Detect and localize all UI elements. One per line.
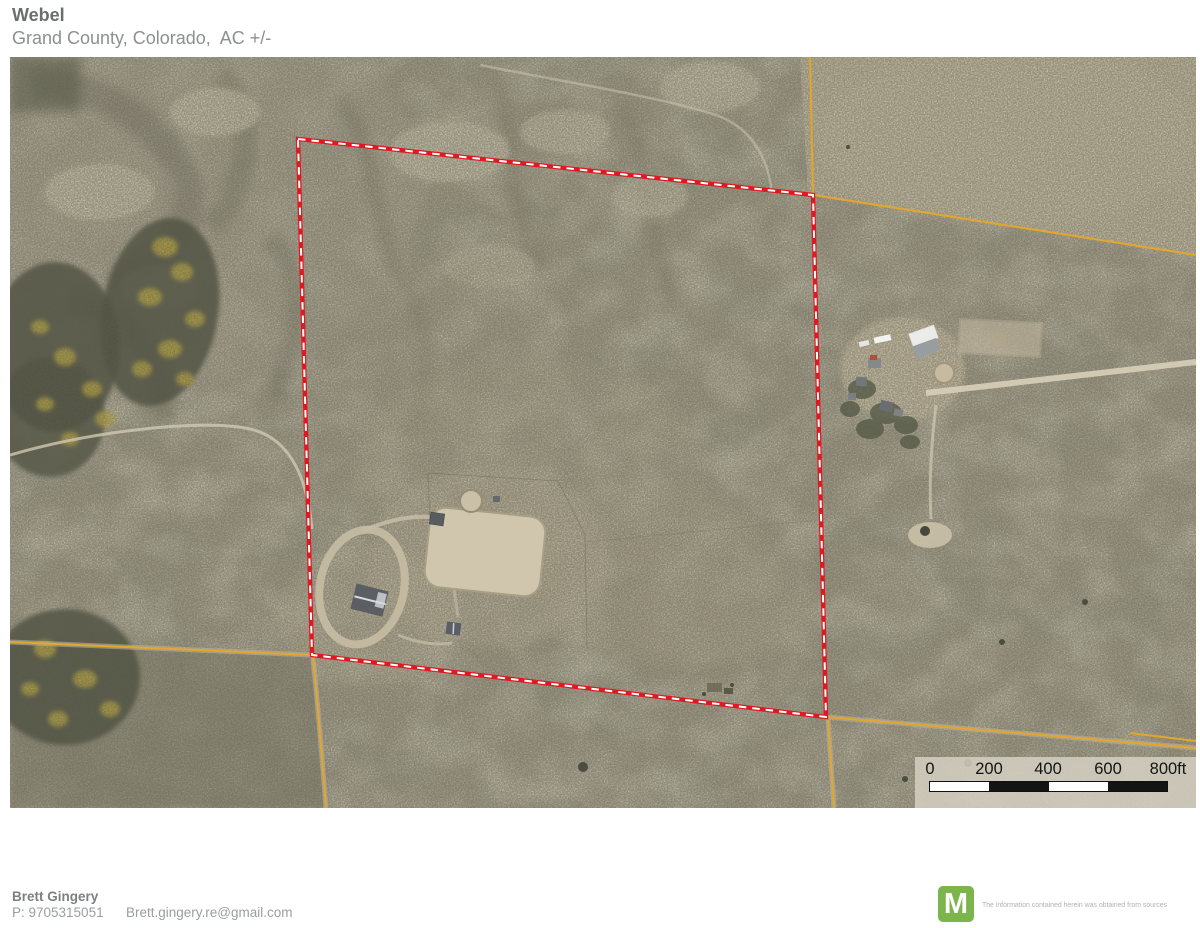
scale-bar-segments <box>929 781 1168 792</box>
scale-bar: 0 200 400 600 800ft <box>915 757 1196 808</box>
outbuilding <box>445 621 462 636</box>
scale-label-600: 600 <box>1094 760 1122 779</box>
small-hut <box>493 496 500 502</box>
scale-label-200: 200 <box>975 760 1003 779</box>
scale-label-800: 800ft <box>1150 760 1187 779</box>
stock-pond <box>920 526 930 536</box>
terrain-speckle <box>10 57 1196 808</box>
page-title: Webel <box>12 5 65 26</box>
page: Webel Grand County, Colorado, AC +/- <box>0 0 1200 928</box>
disclaimer-line: The information contained herein was obt… <box>982 902 1200 911</box>
aerial-map <box>10 57 1196 808</box>
mapright-logo: M <box>938 886 974 922</box>
shed <box>429 512 445 526</box>
disclaimer: The information contained herein was obt… <box>982 885 1200 928</box>
agent-email: Brett.gingery.re@gmail.com <box>126 905 293 920</box>
map-legend: Boundary Boundary River /Creek PrimaryRo… <box>0 808 1200 848</box>
well-pad <box>908 522 952 548</box>
agent-phone: P: 9705315051 <box>12 905 104 920</box>
round-pen <box>460 490 482 512</box>
scale-segment <box>1108 782 1167 791</box>
page-subtitle: Grand County, Colorado, AC +/- <box>12 28 271 49</box>
scale-segment <box>989 782 1048 791</box>
agent-name: Brett Gingery <box>12 889 98 904</box>
scale-label-400: 400 <box>1034 760 1062 779</box>
scale-label-0: 0 <box>925 760 934 779</box>
scale-segment <box>1049 782 1108 791</box>
aerial-imagery <box>10 57 1196 808</box>
scale-segment <box>930 782 989 791</box>
